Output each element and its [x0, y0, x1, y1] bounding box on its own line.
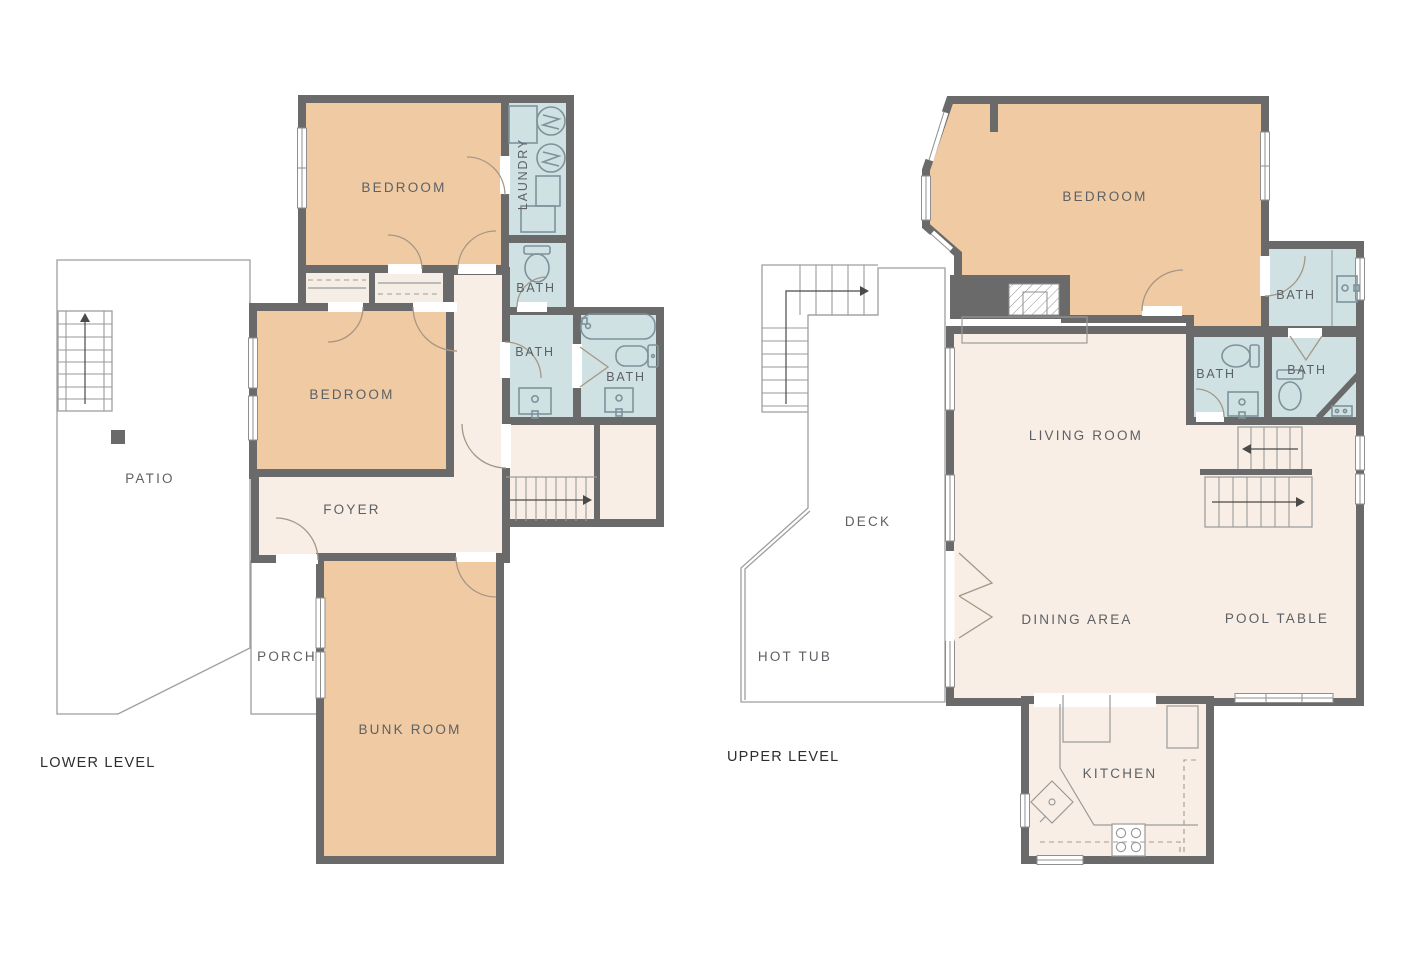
label-bath-right-upper: BATH: [1287, 363, 1327, 377]
deck-stairs-arrow: [786, 286, 869, 404]
label-kitchen: KITCHEN: [1083, 766, 1158, 781]
label-bedroom-top: BEDROOM: [361, 180, 446, 195]
label-bunk-room: BUNK ROOM: [358, 722, 461, 737]
lower-level-title: LOWER LEVEL: [40, 755, 156, 771]
stairs-up-arrow: [80, 313, 90, 404]
label-hot-tub: HOT TUB: [758, 649, 832, 664]
deck-railing: [745, 511, 810, 700]
floor-plan-svg: BEDROOM LAUNDRY BATH BEDROOM BATH BATH F…: [0, 0, 1406, 960]
label-patio: PATIO: [125, 471, 175, 486]
label-laundry: LAUNDRY: [516, 138, 530, 210]
label-dining-area: DINING AREA: [1021, 612, 1132, 627]
kitchen-opening: [1034, 693, 1156, 707]
hall-landing: [506, 421, 660, 523]
deck-area: [741, 268, 945, 702]
label-bedroom-left: BEDROOM: [309, 387, 394, 402]
label-bath-b: BATH: [515, 345, 555, 359]
deck-stairs: [762, 265, 878, 412]
label-bath-a: BATH: [516, 281, 556, 295]
label-deck: DECK: [845, 514, 891, 529]
upper-level-plan: BEDROOM BATH LIVING ROOM BATH BATH DECK …: [727, 100, 1365, 865]
stove-icon: [1112, 824, 1145, 856]
room-bath-right-upper: [1268, 333, 1360, 421]
label-pool-table: POOL TABLE: [1225, 611, 1329, 626]
label-porch: PORCH: [257, 649, 317, 664]
patio-stairs: [58, 311, 112, 411]
label-foyer: FOYER: [323, 502, 381, 517]
label-bath-left-upper: BATH: [1196, 367, 1236, 381]
room-bath-b: [505, 311, 577, 421]
room-bunk: [320, 557, 500, 860]
floor-plan-page: BEDROOM LAUNDRY BATH BEDROOM BATH BATH F…: [0, 0, 1406, 960]
label-bath-top-upper: BATH: [1276, 288, 1316, 302]
fireplace: [950, 275, 1070, 319]
patio-area: [57, 260, 250, 714]
upper-level-title: UPPER LEVEL: [727, 749, 839, 765]
label-living-room: LIVING ROOM: [1029, 428, 1143, 443]
porch-area: [251, 561, 324, 714]
patio-post: [111, 430, 125, 444]
label-bedroom-upper: BEDROOM: [1062, 189, 1147, 204]
label-bath-c: BATH: [606, 370, 646, 384]
lower-level-plan: BEDROOM LAUNDRY BATH BEDROOM BATH BATH F…: [40, 99, 660, 860]
room-bath-a: [505, 239, 570, 311]
